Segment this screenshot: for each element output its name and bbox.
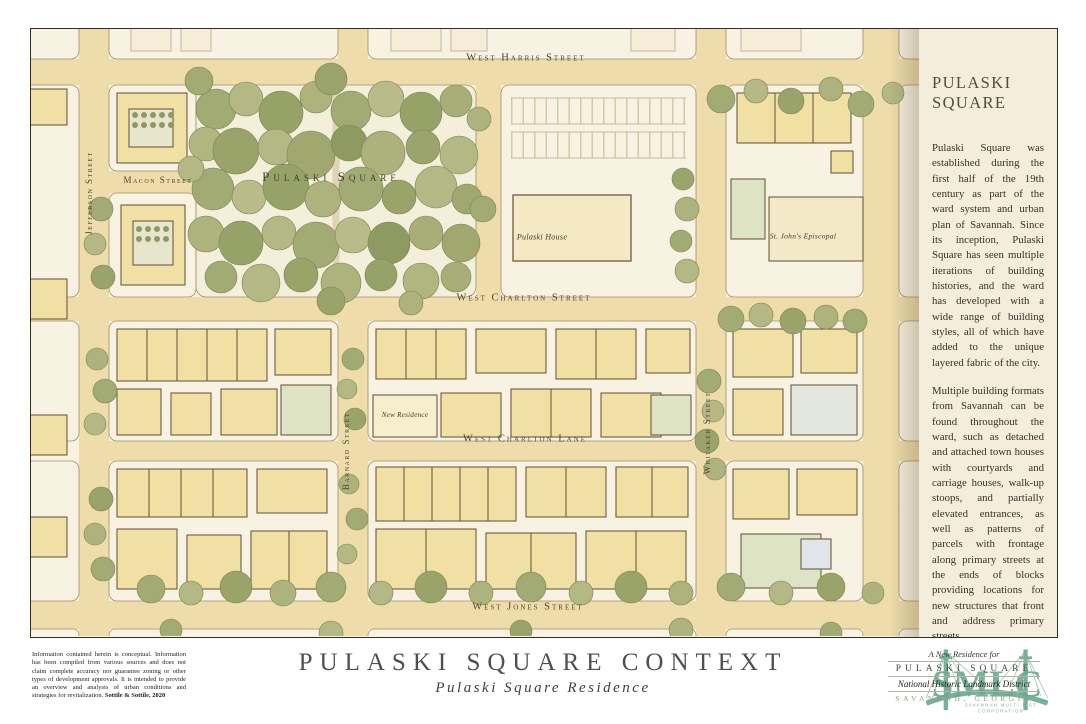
street-label-jefferson: Jefferson Street [84, 151, 94, 234]
street-label-west-jones: West Jones Street [472, 602, 584, 613]
sidebar: PULASKI SQUARE Pulaski Square was establ… [919, 29, 1057, 637]
street-label-west-charlton-street: West Charlton Street [457, 293, 592, 304]
smlc-logo-caption-line2: CORPORATION [978, 709, 1024, 714]
project-line-residence-for: A New Residence for [888, 647, 1040, 661]
sidebar-paragraph: Pulaski Square was established during th… [932, 141, 1044, 371]
street-label-west-harris: West Harris Street [466, 53, 585, 64]
street-label-west-charlton-lane: West Charlton Lane [463, 434, 587, 445]
sidebar-paragraph: Multiple building formats from Savannah … [932, 384, 1044, 638]
page-subtitle: Pulaski Square Residence [299, 680, 788, 697]
disclaimer-credit: Sottile & Sottile, 2020 [105, 692, 165, 699]
project-credit-block: A New Residence for PULASKI SQUARE Natio… [888, 647, 1040, 705]
building-pulaski-house [513, 195, 631, 261]
place-label-st-johns-episcopal: St. John's Episcopal [770, 232, 837, 241]
street-label-whitaker: Whitaker Street [702, 392, 712, 475]
title-block: PULASKI SQUARE CONTEXT Pulaski Square Re… [299, 649, 788, 697]
footer: Information contained herein is conceptu… [0, 645, 1086, 724]
project-line-savannah-georgia: SAVANNAH, GEORGIA [888, 692, 1040, 705]
street-label-barnard: Barnard Street [341, 412, 351, 490]
street-whitaker [696, 29, 726, 636]
project-line-landmark-district: National Historic Landmark District [888, 677, 1040, 692]
place-label-new-residence: New Residence [380, 411, 430, 419]
disclaimer-text: Information contained herein is conceptu… [32, 651, 186, 701]
courtyard-compound-north [117, 93, 187, 163]
page-title: PULASKI SQUARE CONTEXT [299, 649, 788, 677]
project-line-pulaski-square: PULASKI SQUARE [888, 661, 1040, 677]
poster-page: West Harris Street Macon Street Jefferso… [0, 0, 1086, 724]
place-label-pulaski-square: Pulaski Square [262, 169, 400, 185]
street-label-macon: Macon Street [124, 175, 193, 185]
map-frame: West Harris Street Macon Street Jefferso… [30, 28, 1058, 638]
sidebar-heading: PULASKI SQUARE [932, 73, 1044, 113]
park-trees [178, 63, 496, 315]
place-label-pulaski-house: Pulaski House [517, 233, 567, 242]
courtyard-compound-south [121, 205, 185, 285]
